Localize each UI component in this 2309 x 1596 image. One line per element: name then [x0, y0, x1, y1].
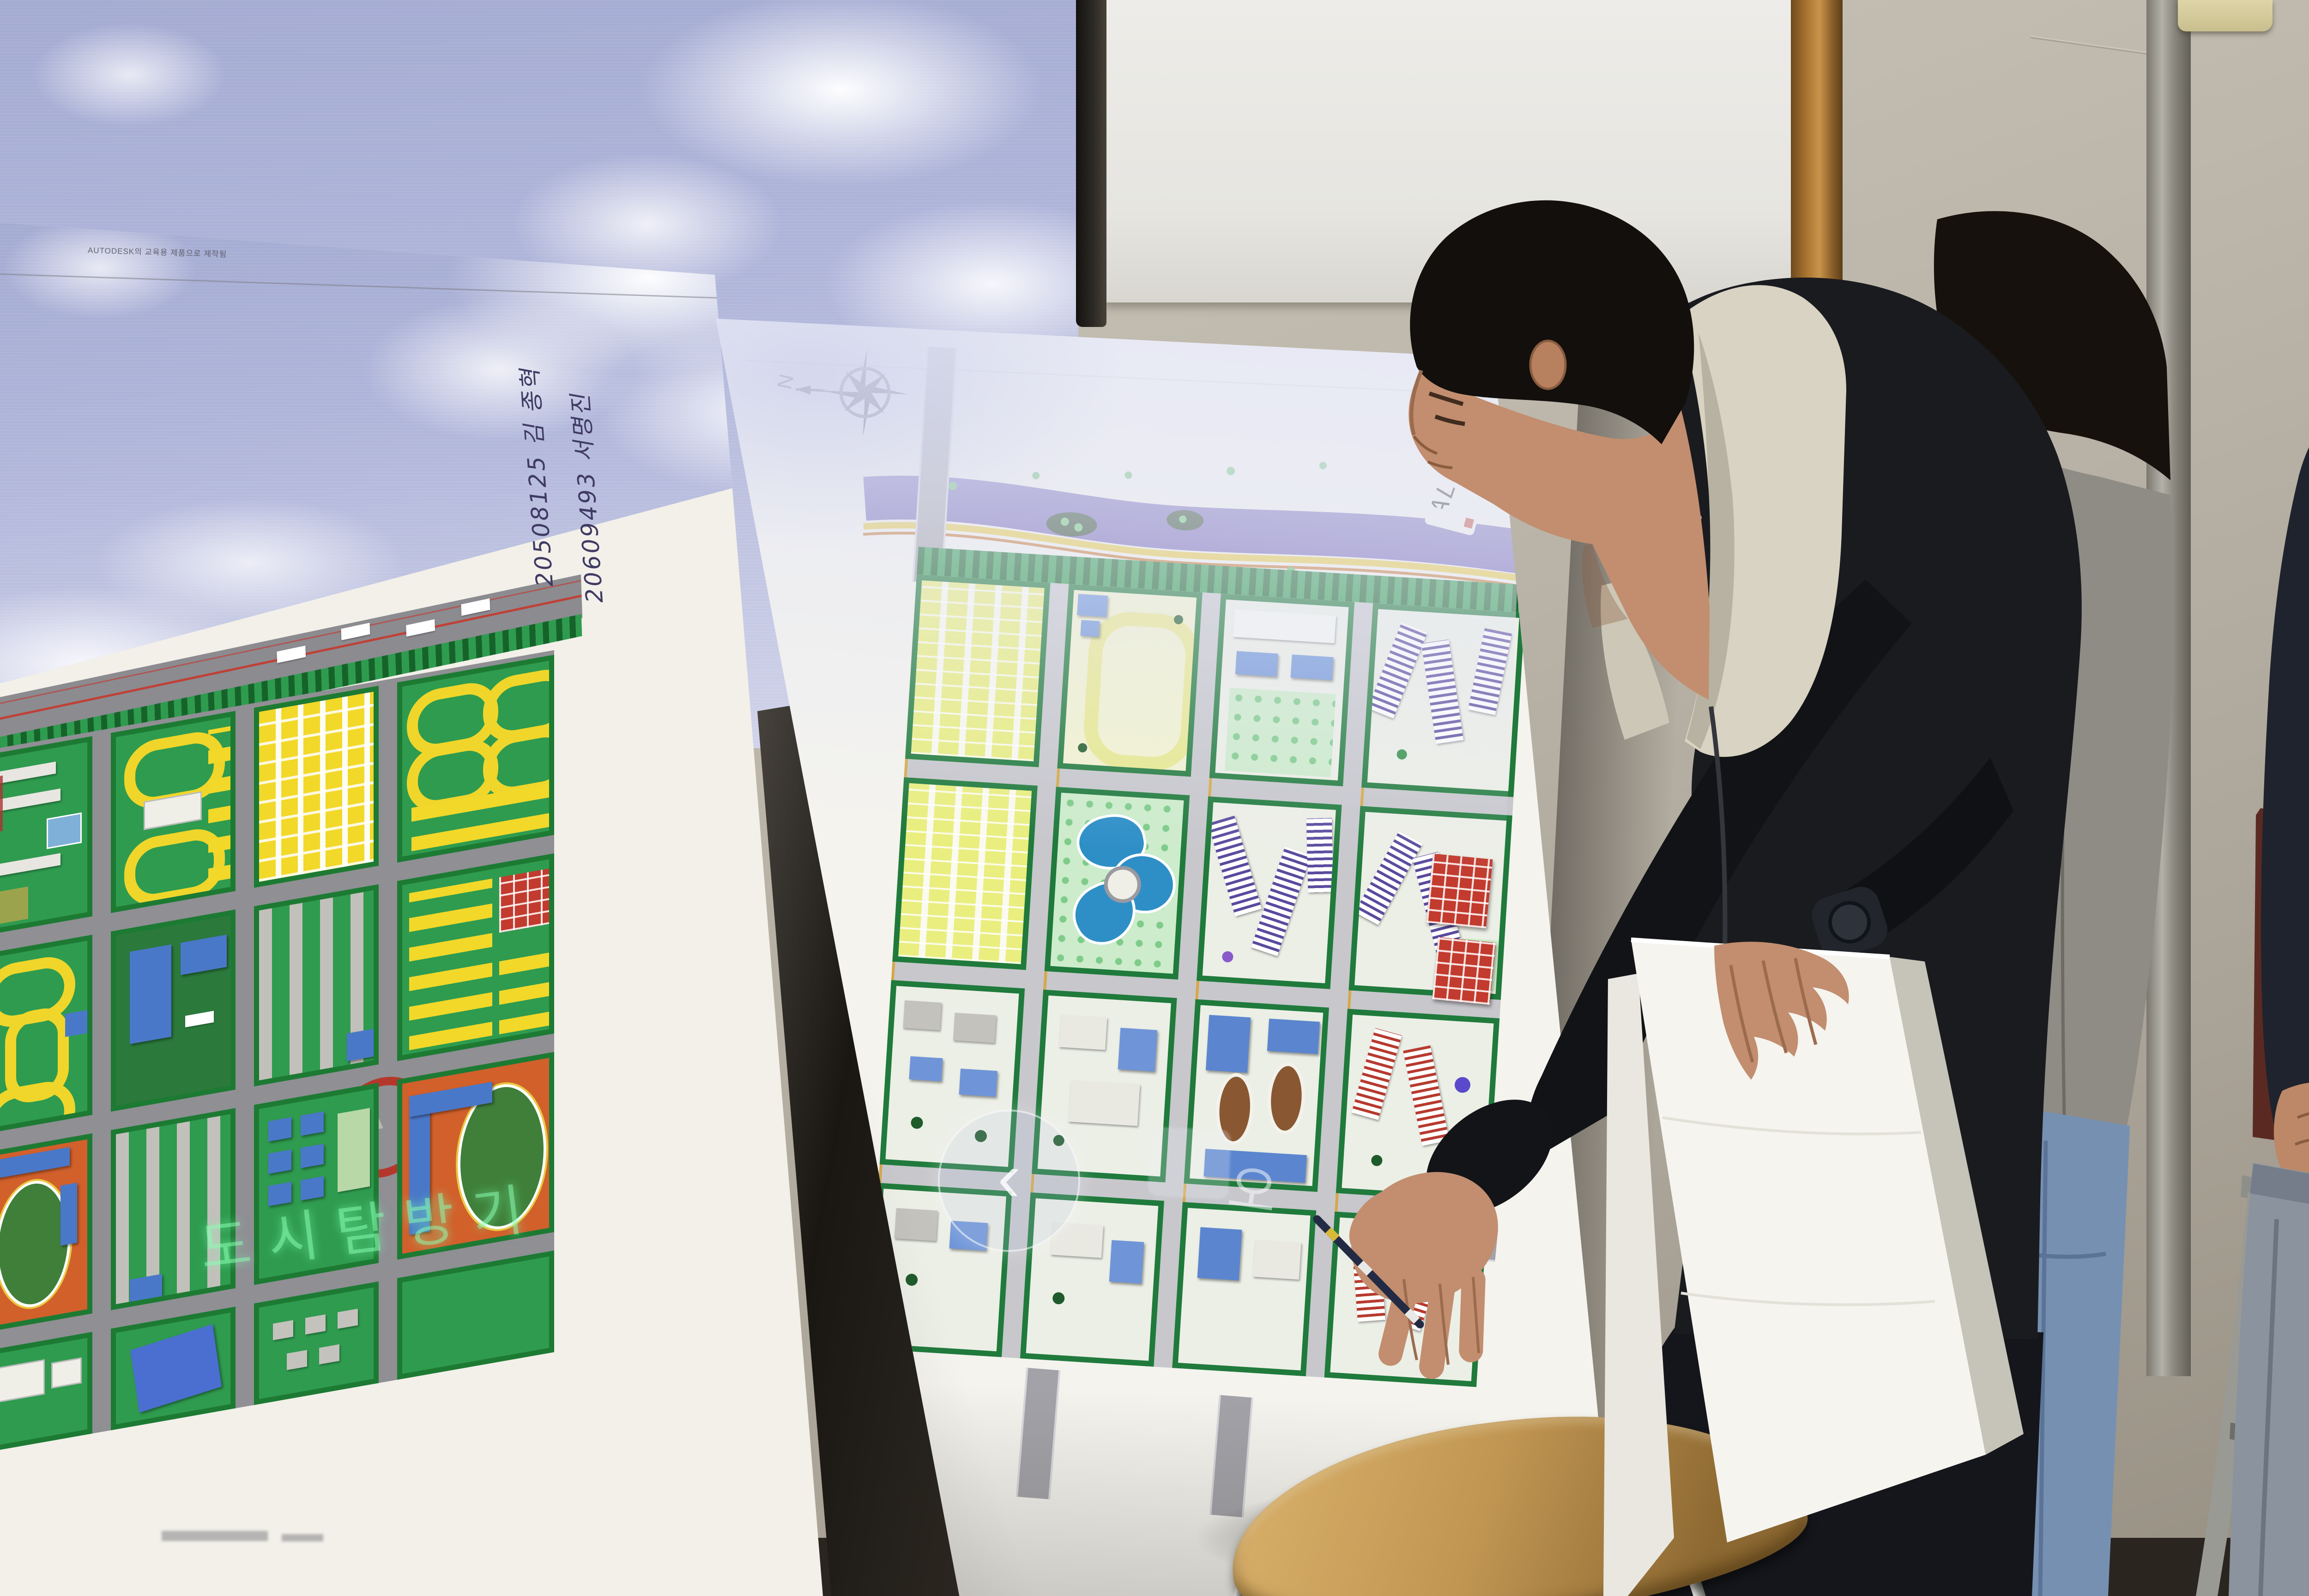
photo-canvas: AUTODESK의 교육용 제품으로 제작됨 20508125 김 종혁 206…: [0, 0, 2309, 1596]
people-front-layer: [0, 0, 2309, 1596]
presenter-right-hand: [1317, 1076, 1574, 1381]
